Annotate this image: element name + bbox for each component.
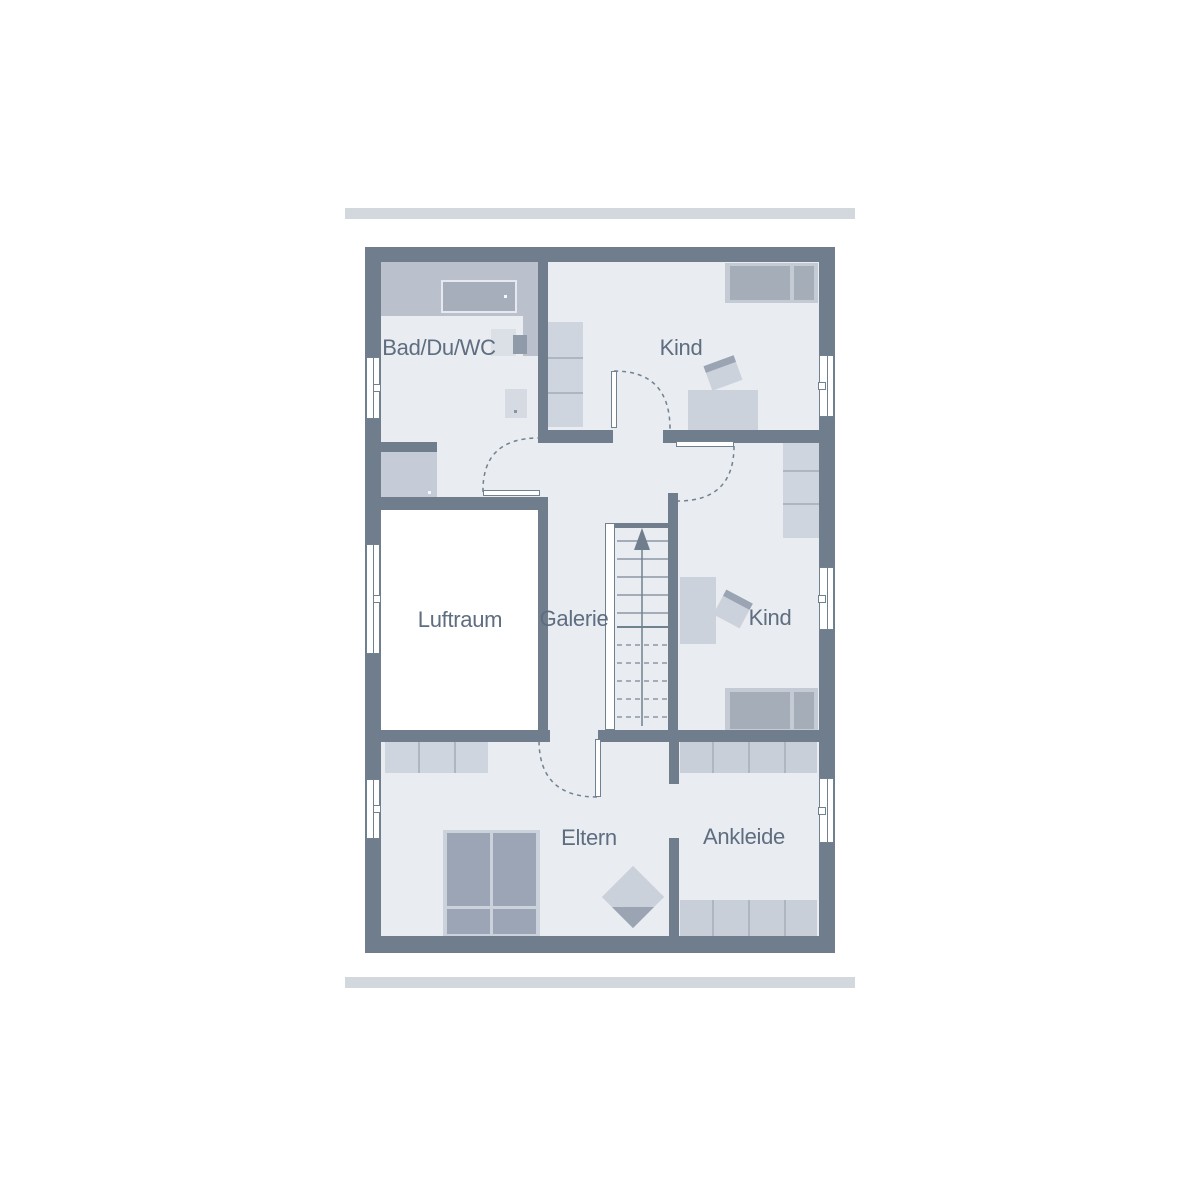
shower (381, 452, 437, 500)
closet-row-bottom-dressing (680, 900, 817, 936)
wardrobe-divider (783, 503, 819, 505)
bed-child-middle-pillow (794, 692, 814, 729)
closet-divider (712, 742, 714, 773)
bed-child-top-pillow (794, 266, 814, 300)
toilet (505, 389, 527, 418)
door-leaf-child-top (611, 371, 617, 428)
room-label-child-middle: Kind (749, 605, 792, 631)
closet-divider (748, 900, 750, 936)
shelf-divider (548, 392, 583, 394)
window-bathroom (366, 357, 380, 419)
roof-edge-bar-top (345, 208, 855, 219)
window-midline (827, 568, 828, 629)
bathtub (441, 280, 517, 313)
room-label-bathroom: Bad/Du/WC (382, 335, 495, 361)
door-leaf-child-middle (676, 441, 734, 447)
closet-divider (748, 742, 750, 773)
wall-parents-north (598, 730, 819, 742)
closet-divider (784, 742, 786, 773)
window-child-top (819, 355, 834, 417)
room-label-gallery: Galerie (540, 606, 609, 632)
window-dressing (819, 778, 834, 843)
bathtub-faucet-dot (504, 295, 507, 298)
window-handle (373, 595, 381, 603)
bed-parents-mattress-right (493, 833, 536, 906)
window-child-middle (819, 567, 834, 630)
shelf-divider (548, 357, 583, 359)
window-airspace (366, 544, 380, 654)
wall-bath-stub (381, 442, 437, 452)
window-handle (373, 805, 381, 813)
window-midline (827, 779, 828, 842)
shelf-child-top (548, 322, 583, 427)
wall-dressing-stub-top (669, 742, 679, 784)
door-leaf-parents (595, 739, 601, 797)
desk-child-top (688, 390, 758, 430)
closet-divider (712, 900, 714, 936)
wardrobe-divider (783, 470, 819, 472)
closet-row-top-dressing (680, 742, 817, 773)
bed-parents-mattress-left (447, 833, 490, 906)
room-label-parents: Eltern (561, 825, 617, 851)
washbasin-bowl (513, 335, 527, 354)
toilet-dot (514, 410, 517, 413)
window-handle (818, 382, 826, 390)
wall-stair-east (668, 493, 678, 732)
room-label-dressing: Ankleide (703, 824, 785, 850)
window-handle (373, 384, 381, 392)
closet-divider (784, 900, 786, 936)
window-midline (827, 356, 828, 416)
bed-parents-pillow-right (493, 909, 536, 934)
floor-plan-canvas: Bad/Du/WC Kind Luftraum Galerie Kind Elt… (0, 0, 1200, 1200)
wardrobe-child-middle (783, 437, 819, 538)
room-label-child-top: Kind (660, 335, 703, 361)
wall-bath-child (538, 262, 548, 443)
bed-parents-pillow-left (447, 909, 490, 934)
desk-child-middle (680, 577, 716, 644)
window-handle (818, 807, 826, 815)
window-handle (818, 595, 826, 603)
bed-child-top-mattress (730, 266, 790, 300)
sideboard-divider (454, 742, 456, 773)
door-leaf-bathroom (483, 490, 540, 496)
window-parents (366, 779, 380, 839)
room-label-air-space: Luftraum (418, 607, 502, 633)
shower-drain-dot (428, 491, 431, 494)
wall-hall-north (538, 430, 613, 443)
roof-edge-bar-bottom (345, 977, 855, 988)
wall-airspace-north (381, 497, 548, 510)
sideboard-parents (385, 742, 488, 773)
bed-child-middle-mattress (730, 692, 790, 729)
sideboard-divider (418, 742, 420, 773)
wall-dressing-stub-bottom (669, 838, 679, 938)
wall-airspace-south (381, 730, 550, 742)
